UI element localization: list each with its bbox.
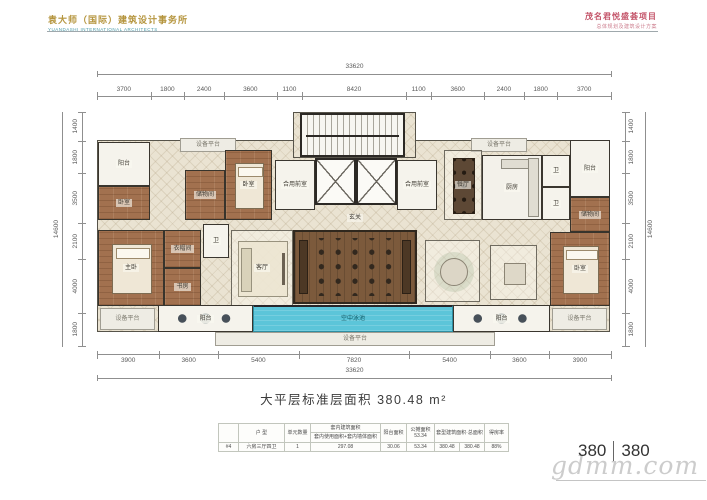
dimension-total-left: 14600 [52,112,63,347]
dim-segment: 1800 [626,313,638,346]
dim-value: 1100 [282,87,296,94]
cell-total-area-1: 380.48 [435,442,460,451]
dim-segment: 1100 [277,84,303,96]
dim-segment: 4000 [70,259,82,314]
dimension-chain-top: 3700180024003600110084201100360024001800… [97,84,612,97]
room-label: 合用前室 [403,181,431,189]
floor-plan: 合用前室合用前室设备平台设备平台阳台卧室储物间卧室卫主卧衣帽间书房客厅玄关餐厅厨… [97,112,612,347]
table-row: #4 六房三厅四卫 1 297.08 30.06 53.34 380.48 38… [219,442,509,451]
dim-segment: 7820 [299,355,409,367]
room-deck [293,230,417,304]
dim-segment: 3600 [490,355,549,367]
dim-segment: 3700 [557,84,611,96]
room-label: 卧室 [116,199,132,207]
dim-value: 3600 [450,87,464,94]
dim-value: 3600 [181,358,195,365]
room-label: 卫 [551,200,561,208]
col-efficiency: 得房率 [485,424,509,443]
dim-value: 3600 [243,87,257,94]
dimension-total-top: 33620 [97,64,612,75]
page-number: 380 380 [578,441,650,461]
counter-furniture [528,158,539,217]
dim-value: 5400 [442,358,456,365]
page-number-left: 380 [578,441,606,461]
dim-segment: 3600 [431,84,484,96]
area-table: 户 型 单元数量 套内建筑面积 阳台面积 公摊面积 53.34 套型建筑面积·总… [218,423,509,452]
footer-rule [556,480,706,481]
dim-value: 3700 [117,87,131,94]
room-label: 餐厅 [455,181,471,189]
dim-segment: 3600 [159,355,218,367]
dim-value: 7820 [347,358,361,365]
col-unit-count: 单元数量 [285,424,311,443]
dim-value: 2400 [497,87,511,94]
dim-value: 4000 [73,279,80,293]
room-stair-core [300,113,405,157]
dim-total-value: 33620 [345,368,363,375]
dim-total-value: 14600 [54,220,61,238]
dim-value: 1800 [73,150,80,164]
dim-value: 5400 [251,358,265,365]
dim-segment: 1800 [70,141,82,174]
room-equip-band: 设备平台 [215,332,495,346]
col-unit-type: 户 型 [239,424,285,443]
room-label: 卧室 [240,181,256,189]
dim-segment: 2400 [184,84,224,96]
project-subtitle: 总体规划及建筑设计方案 [585,23,657,30]
dim-value: 1400 [73,119,80,133]
room-equip-bottom-left: 设备平台 [100,308,155,330]
dim-value: 3500 [629,191,636,205]
room-storage-right: 储物间 [570,197,610,232]
room-master-right: 卧室 [550,232,610,306]
dim-value: 8420 [347,87,361,94]
room-bath-right-1: 卫 [542,155,570,187]
round-table-furniture [440,258,468,286]
dim-value: 1800 [533,87,547,94]
dim-value: 1100 [412,87,426,94]
room-label: 卫 [551,167,561,175]
room-elevator-right [356,158,397,205]
room-dining-right: 餐厅 [444,150,482,220]
room-study-left: 书房 [164,268,201,306]
dim-segment: 3500 [70,173,82,223]
room-front-room-left: 合用前室 [275,160,315,210]
dim-segment: 1800 [151,84,185,96]
col-shared-area: 公摊面积 53.34 [407,424,435,443]
dim-value: 3500 [73,191,80,205]
room-foyer: 玄关 [332,210,378,226]
dim-value: 2100 [73,234,80,248]
dim-segment: 5400 [218,355,299,367]
room-label: 设备平台 [341,335,369,343]
dim-segment: 1800 [524,84,558,96]
room-balcony-bottom-left: 阳台 [158,305,253,332]
room-label: 卫 [211,237,221,245]
dim-total-value: 33620 [345,64,363,71]
dim-segment: 8420 [302,84,406,96]
room-storage-left: 储物间 [185,170,225,220]
room-elevator-left [315,158,356,205]
dim-value: 3900 [573,358,587,365]
deck-seats-furniture [313,238,397,295]
page: 袁大师（国际）建筑设计事务所 YUANDASHI INTERNATIONAL A… [0,0,707,500]
cell-unit-count: 1 [285,442,311,451]
studio-logo: 袁大师（国际）建筑设计事务所 YUANDASHI INTERNATIONAL A… [48,13,188,32]
dimension-total-right: 14600 [645,112,656,347]
room-tea-lounge [425,240,480,302]
cell-interior-area: 297.08 [311,442,381,451]
room-label: 设备平台 [485,141,513,149]
room-bedroom-left-far: 卧室 [98,186,150,220]
room-balcony-top-left: 阳台 [98,142,150,186]
room-label: 书房 [174,283,190,291]
dim-value: 3700 [577,87,591,94]
room-balcony-top-right: 阳台 [570,140,610,197]
dim-segment: 1800 [70,313,82,346]
cell-id: #4 [219,442,239,451]
project-title-block: 茂名君悦盛荟项目 总体规划及建筑设计方案 [585,11,657,30]
cell-shared-area: 53.34 [407,442,435,451]
room-label: 储物间 [579,211,601,219]
room-label: 衣帽间 [171,245,193,253]
dim-value: 1800 [160,87,174,94]
col-total-area: 套型建筑面积·总面积 [435,424,485,443]
room-bedroom-left: 卧室 [225,150,272,220]
room-game-lounge [490,245,537,300]
room-label: 卧室 [572,265,588,273]
room-label: 储物间 [194,191,216,199]
room-kitchen-right: 厨房 [482,155,542,220]
dim-value: 3900 [121,358,135,365]
dim-value: 1800 [629,322,636,336]
room-label: 合用前室 [281,181,309,189]
room-label: 阳台 [197,315,213,323]
col-interior-area: 套内建筑面积 [311,424,381,433]
room-label: 阳台 [582,165,598,173]
page-number-divider [613,441,614,461]
dimension-total-bottom: 33620 [97,368,612,379]
room-label: 设备平台 [113,315,141,323]
studio-name: 袁大师（国际）建筑设计事务所 [48,13,188,26]
dim-total-value: 14600 [648,220,655,238]
cell-unit-type: 六房三厅四卫 [239,442,285,451]
dim-segment: 1400 [70,112,82,141]
room-label: 设备平台 [194,141,222,149]
room-label: 阳台 [116,160,132,168]
col-interior-area-sub: 套内使用面积+套内墙体面积 [311,433,381,442]
dim-value: 3600 [512,358,526,365]
page-number-right: 380 [621,441,649,461]
room-label: 玄关 [347,214,363,222]
room-equip-bottom-right: 设备平台 [552,308,607,330]
dim-segment: 1100 [406,84,432,96]
room-pool: 空中泳池 [253,305,453,332]
room-master-left: 主卧 [98,230,164,306]
dimension-chain-right: 140018003500210040001800 [625,112,638,347]
dim-segment: 2100 [626,223,638,259]
dim-segment: 3900 [97,355,159,367]
room-balcony-bottom-right: 阳台 [453,305,550,332]
cell-total-area-2: 380.48 [460,442,485,451]
dim-value: 2100 [629,234,636,248]
room-label: 客厅 [254,264,270,272]
dim-segment: 3700 [97,84,151,96]
dim-segment: 3500 [626,173,638,223]
area-caption: 大平层标准层面积 380.48 m² [0,389,707,408]
header-divider [47,31,658,32]
dim-segment: 1400 [626,112,638,141]
dim-segment: 5400 [409,355,490,367]
room-bath-left: 卫 [203,224,229,258]
table-corner [219,424,239,443]
col-balcony-area: 阳台面积 [381,424,407,443]
dim-value: 1800 [73,322,80,336]
room-label: 主卧 [123,264,139,272]
dimension-chain-bottom: 3900360054007820540036003900 [97,354,612,367]
dim-segment: 2400 [484,84,524,96]
cell-balcony-area: 30.06 [381,442,407,451]
room-label: 设备平台 [565,315,593,323]
dimension-chain-left: 140018003500210040001800 [70,112,83,347]
square-table-furniture [504,263,526,285]
dim-value: 1800 [629,150,636,164]
dim-value: 2400 [197,87,211,94]
dim-segment: 4000 [626,259,638,314]
room-label: 空中泳池 [339,315,367,323]
cell-efficiency: 88% [485,442,509,451]
room-bath-right-2: 卫 [542,187,570,220]
dim-value: 1400 [629,119,636,133]
dim-segment: 3900 [549,355,611,367]
room-label: 厨房 [504,184,520,192]
room-label: 阳台 [493,315,509,323]
dim-segment: 1800 [626,141,638,174]
project-title: 茂名君悦盛荟项目 [585,11,657,22]
dim-segment: 3600 [224,84,277,96]
col-shared-area-value: 53.34 [414,433,427,439]
room-living-left: 客厅 [231,230,293,306]
dim-segment: 2100 [70,223,82,259]
room-front-room-right: 合用前室 [397,160,437,210]
dim-value: 4000 [629,279,636,293]
room-cloak-left: 衣帽间 [164,230,201,268]
col-shared-area-label: 公摊面积 [410,427,430,433]
